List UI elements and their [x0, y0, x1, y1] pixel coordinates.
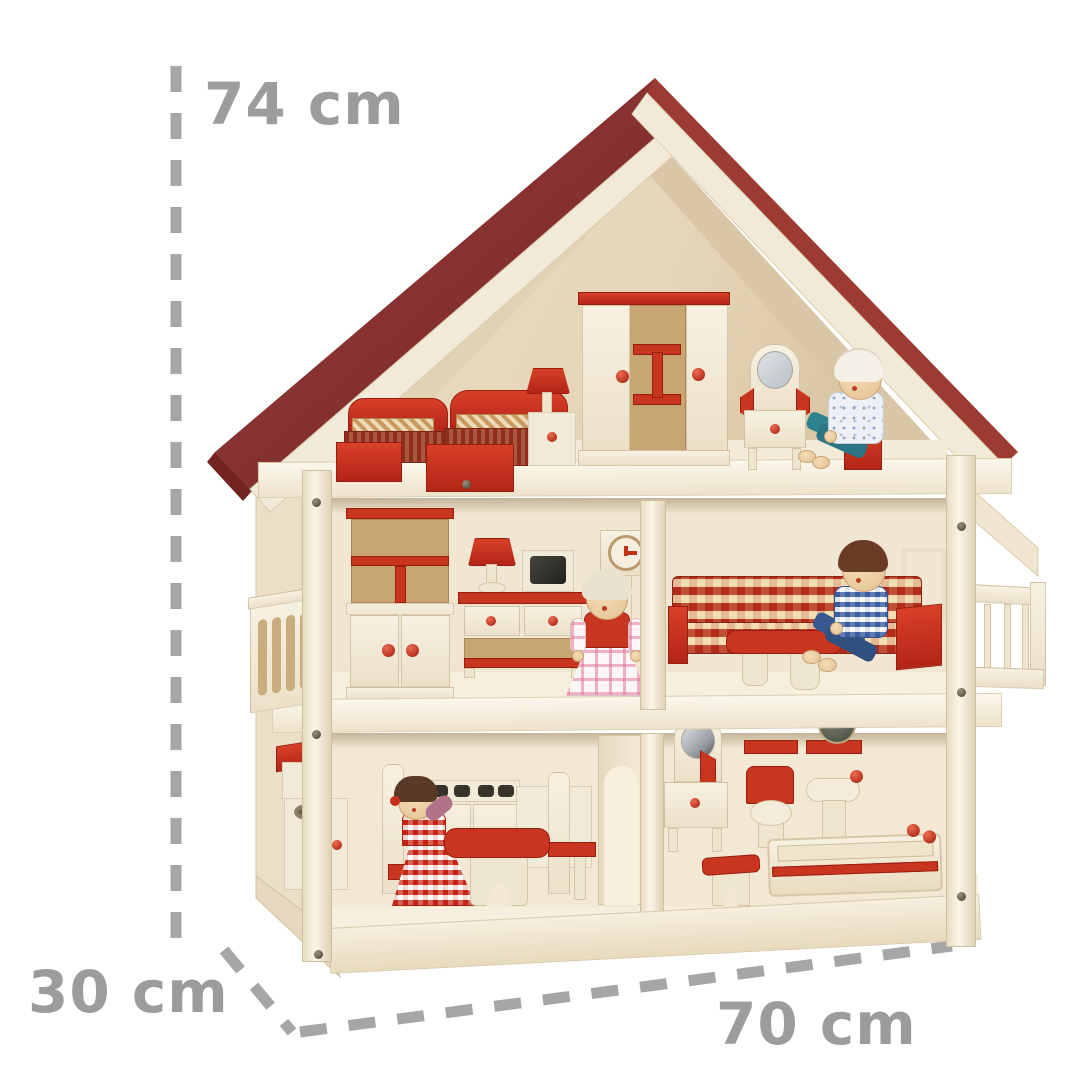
grandma-sleeve: [570, 618, 586, 654]
dad-hand: [830, 622, 843, 635]
balcony-slot: [286, 614, 295, 691]
depth-label: 30 cm: [28, 958, 229, 1026]
bathtub-inner-rim: [777, 840, 933, 861]
grandpa-foot: [812, 456, 830, 469]
left-front-post: [302, 470, 332, 962]
width-label: 70 cm: [716, 990, 917, 1058]
balcony-bottom-rail: [972, 667, 1045, 690]
arched-doorway: [604, 766, 638, 905]
burner: [454, 785, 470, 797]
balcony-spindle: [1022, 604, 1029, 672]
mom-hair-bow: [390, 796, 400, 806]
burner: [478, 785, 494, 797]
cabinet-divider-bar: [395, 566, 406, 603]
toilet-bowl: [750, 800, 792, 826]
sideboard: [458, 592, 588, 678]
wardrobe-center-bar: [652, 352, 663, 398]
tall-cabinet: [346, 508, 454, 700]
sideboard-top: [458, 592, 588, 604]
wardrobe-plinth: [578, 450, 730, 466]
washbasin-tap: [850, 770, 863, 783]
toilet-lid: [746, 766, 794, 804]
dining-table-top: [444, 828, 550, 858]
wardrobe-top-trim: [578, 292, 730, 305]
bathtub-tap: [907, 824, 920, 837]
height-label: 74 cm: [204, 70, 405, 138]
chair-seat: [548, 842, 596, 857]
depth-dimension-line: [224, 950, 292, 1032]
ground-center-post: [640, 733, 664, 919]
chair-back: [548, 772, 570, 894]
dollhouse-product-photo: 74 cm 30 cm 70 cm: [0, 0, 1080, 1080]
grandma-mouth: [602, 606, 607, 611]
mom-hair: [394, 776, 438, 802]
bed-footboard: [336, 442, 402, 482]
balcony-spindle: [1004, 604, 1011, 670]
sofa-armrest-right: [896, 604, 942, 671]
sideboard-bottom-bar: [464, 658, 582, 668]
vanity: [662, 716, 732, 852]
bathtub-red-stripe: [772, 861, 938, 877]
middle-floor-band: [272, 693, 1002, 733]
grandpa-mouth: [852, 386, 857, 391]
lamp-stem: [542, 392, 552, 414]
mom-mouth: [412, 808, 416, 812]
balcony-slot: [272, 616, 281, 693]
lamp-shade: [526, 368, 570, 394]
dad-foot: [818, 658, 837, 672]
sideboard-open-shelf: [464, 638, 582, 660]
balcony-spindle: [984, 604, 991, 668]
grandma-hand: [572, 650, 584, 662]
coffee-table-leg: [742, 652, 768, 686]
balcony-slot: [258, 619, 267, 696]
cabinet-top-trim: [346, 508, 454, 519]
wardrobe: [578, 292, 730, 466]
middle-center-post: [640, 500, 666, 710]
mirror-glass: [757, 351, 793, 389]
bathtub: [767, 833, 943, 897]
cabinet-shelf-bar: [351, 556, 449, 566]
chair-leg: [574, 856, 586, 900]
bathtub-tap: [923, 830, 936, 843]
wall-rail: [744, 740, 798, 754]
grandpa-hand: [824, 430, 837, 443]
tv-screen: [530, 556, 566, 584]
cabinet-mid-rail: [346, 603, 454, 615]
sofa-armrest-left: [668, 606, 688, 664]
clock-hand-minute: [626, 551, 637, 555]
burner: [498, 785, 514, 797]
dad-mouth: [856, 578, 861, 583]
table-lamp-shade: [468, 538, 516, 566]
table-lamp-stem: [486, 564, 497, 584]
right-balcony: [972, 580, 1046, 694]
